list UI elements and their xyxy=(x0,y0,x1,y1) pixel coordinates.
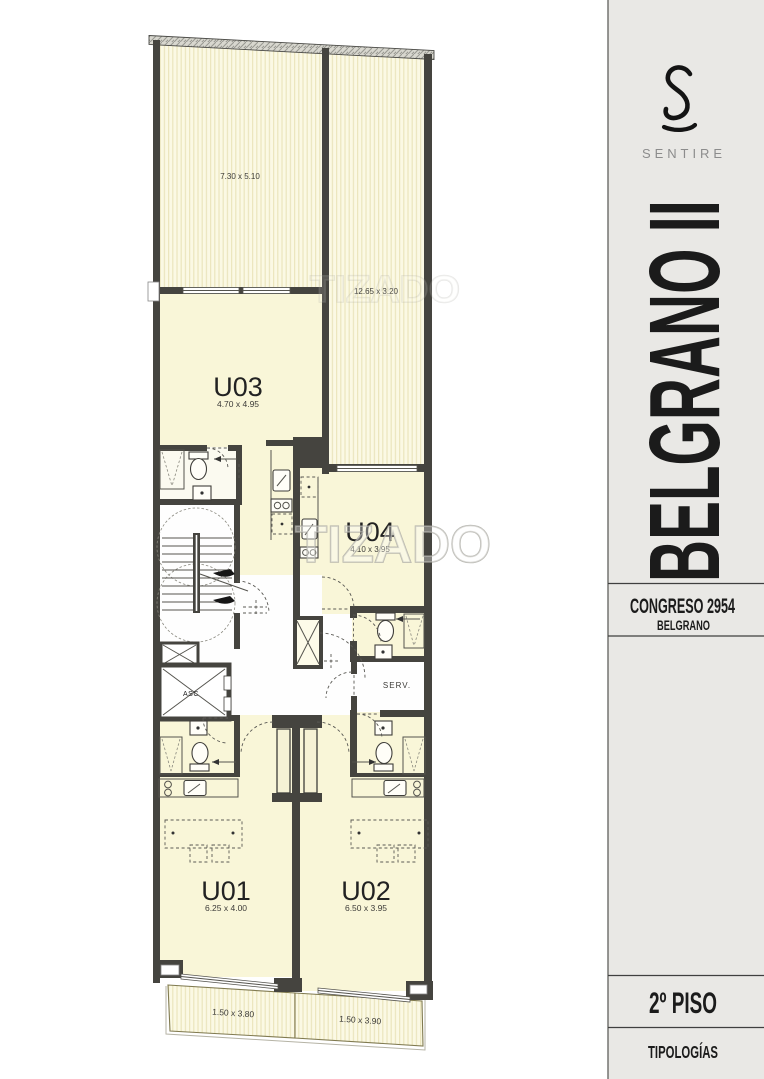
elevator-door-b xyxy=(224,697,231,711)
toilet-u01-icon xyxy=(192,743,208,764)
wall-notch-left xyxy=(148,282,159,301)
sink-u04-drain xyxy=(381,650,384,653)
island-u01-dot-b xyxy=(232,832,235,835)
island-u02-dot-b xyxy=(418,832,421,835)
toilet-u01-tank xyxy=(190,764,209,771)
toilet-u04-icon xyxy=(378,621,394,642)
wall-u03-kitchen-top xyxy=(266,440,294,446)
wall-terrace-divider xyxy=(322,48,329,474)
terrace-1-floor xyxy=(159,45,322,291)
sidebar: SENTIRE BELGRANO II CONGRESO 2954 BELGRA… xyxy=(608,0,764,1079)
unit-u03-floor xyxy=(159,291,322,451)
wall-u02bath-top xyxy=(380,710,426,717)
elevator-label: ASC xyxy=(183,691,199,698)
terrace-1-dims: 7.30 x 5.10 xyxy=(220,172,260,181)
wall-serv-left-b xyxy=(351,696,357,712)
toilet-u03-icon xyxy=(191,459,207,480)
toilet-u02-tank xyxy=(374,764,393,771)
wall-u03bath-right xyxy=(236,445,242,505)
unit-u03-dims: 4.70 x 4.95 xyxy=(217,399,259,409)
toilet-u04-tank xyxy=(376,613,395,620)
typology-sheet: ASC xyxy=(0,0,764,1079)
floor-plan-canvas: ASC xyxy=(0,0,764,1079)
neighborhood-line: BELGRANO xyxy=(657,618,710,633)
wall-u03-top xyxy=(156,287,323,294)
wall-left-outer xyxy=(153,40,160,983)
project-title: BELGRANO II xyxy=(629,200,741,582)
toilet-u02-icon xyxy=(376,743,392,764)
watermark-faint-top: TIZADO xyxy=(310,269,460,311)
lobby-floor xyxy=(322,614,352,723)
fridge-u04-dot xyxy=(308,486,311,489)
service-label: SERV. xyxy=(383,681,411,690)
sink-u02-drain xyxy=(381,726,384,729)
wall-notch-bottom-right xyxy=(410,985,427,994)
caption-label: TIPOLOGÍAS xyxy=(648,1041,718,1062)
wall-u04bath-left-a xyxy=(350,606,357,618)
floor-label: 2º PISO xyxy=(649,987,717,1020)
address-line: CONGRESO 2954 xyxy=(630,595,735,618)
unit-u03-label: U03 xyxy=(213,372,263,402)
wall-u01bath-right xyxy=(234,715,240,777)
fridge-u03-dot xyxy=(281,523,284,526)
terrace-2-floor xyxy=(329,53,424,473)
wall-unit-divider xyxy=(292,715,300,989)
unit-u01-dims: 6.25 x 4.00 xyxy=(205,903,247,913)
door-leaf-u01 xyxy=(277,729,290,793)
unit-u02-label: U02 xyxy=(341,876,391,906)
wall-notch-bottom-left xyxy=(161,965,179,975)
island-u01-dot-a xyxy=(172,832,175,835)
kitchen-shaft xyxy=(295,618,321,667)
wall-stair-right-a xyxy=(234,505,240,583)
sink-u03-drain xyxy=(200,491,203,494)
island-u02-dot-a xyxy=(358,832,361,835)
wall-stair-right-b xyxy=(234,613,240,649)
elevator-door-a xyxy=(224,676,231,690)
wall-u04-bottom xyxy=(350,606,426,613)
wall-u02bath-left xyxy=(350,712,357,777)
unit-u01-label: U01 xyxy=(201,876,251,906)
unit-u02-dims: 6.50 x 3.95 xyxy=(345,903,387,913)
door-leaf-u02 xyxy=(304,729,317,793)
watermark-main: TIZADO xyxy=(295,516,491,574)
sink-u01-drain xyxy=(196,726,199,729)
window-u01-balcony-line xyxy=(181,977,278,987)
